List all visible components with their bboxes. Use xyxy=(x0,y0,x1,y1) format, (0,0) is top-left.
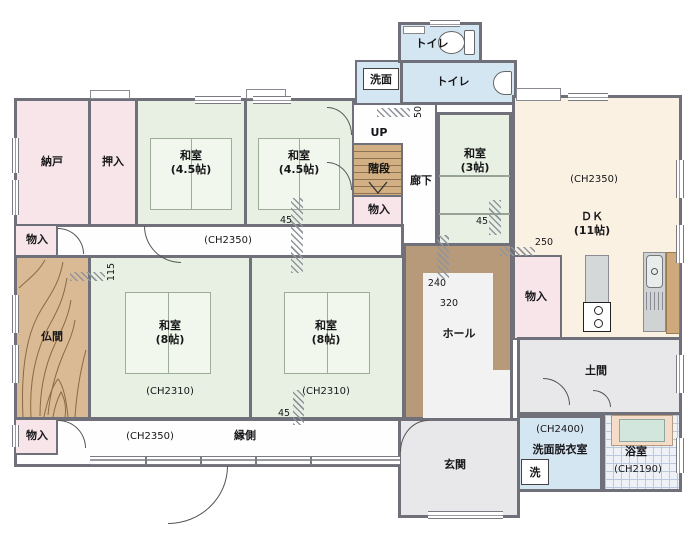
hatch-6 xyxy=(70,272,105,281)
kitchen-side-counter xyxy=(666,252,680,334)
engawa-mullion-1 xyxy=(145,456,147,465)
room-dk-label: ＤＫ xyxy=(581,210,603,224)
hatch-4 xyxy=(500,247,535,256)
hall-floor-inner xyxy=(423,273,493,418)
toilet2-bowl xyxy=(493,71,512,95)
room-washitsu3-label: 和室 xyxy=(464,147,486,161)
stove-burner-1 xyxy=(594,306,603,315)
window-monoire-sw xyxy=(12,425,19,447)
room-dk-size: (11帖) xyxy=(574,224,610,238)
hatch-2 xyxy=(377,108,410,117)
roof-outline-3 xyxy=(516,88,561,101)
room-monoire-nw-label: 物入 xyxy=(26,233,48,247)
room-washitsu8a-label: 和室 xyxy=(159,319,181,333)
dim-320: 320 xyxy=(440,298,458,310)
engawa-ch-label: (CH2350) xyxy=(126,431,174,444)
floor-plan: 納戸 押入 和室 (4.5帖) 和室 (4.5帖) UP 階段 物入 廊下 洗面… xyxy=(0,0,696,557)
window-dk-top xyxy=(568,93,608,101)
room-oshiire-label: 押入 xyxy=(102,155,124,169)
hall-floor-inner2 xyxy=(493,370,510,418)
room-washitsu8a-size: (8帖) xyxy=(156,333,185,347)
room-bath-label: 浴室 xyxy=(625,445,647,459)
dim-45-bottom: 45 xyxy=(278,408,290,420)
room-butsuma-label: 仏間 xyxy=(41,330,63,344)
room-toilet2-label: トイレ xyxy=(437,75,470,89)
window-toilet1 xyxy=(430,20,460,27)
room-washitsu8b-size: (8帖) xyxy=(312,333,341,347)
bathtub xyxy=(619,419,665,442)
stairs-up-label: UP xyxy=(371,126,388,140)
stairs-label: 階段 xyxy=(368,162,390,176)
room-senmen-label: 洗面 xyxy=(363,68,399,90)
dim-45-top: 45 xyxy=(280,215,292,227)
room-washitsu8b-label: 和室 xyxy=(315,319,337,333)
room-washitsu3-size: (3帖) xyxy=(461,161,490,175)
room-toilet1-label: トイレ xyxy=(416,37,449,51)
stairs-direction-arrow xyxy=(366,180,390,196)
toilet1-tank xyxy=(464,30,475,55)
window-doma-right xyxy=(676,355,684,393)
room-washitsu45a-size: (4.5帖) xyxy=(171,163,212,177)
engawa-mullion-4 xyxy=(310,456,312,465)
sink-drain xyxy=(651,268,658,275)
window-nando-2 xyxy=(12,180,19,215)
room-engawa-label: 縁側 xyxy=(234,429,256,443)
room-washitsu8a-ch: (CH2310) xyxy=(146,386,194,399)
dim-50: 50 xyxy=(413,106,425,118)
dim-250: 250 xyxy=(535,237,553,249)
washitsu3-divider-1 xyxy=(439,175,510,177)
room-genkan-label: 玄関 xyxy=(444,458,466,472)
room-nando-label: 納戸 xyxy=(41,155,63,169)
engawa-window-rail xyxy=(90,459,400,460)
room-washitsu8b-ch: (CH2310) xyxy=(302,386,350,399)
hatch-1 xyxy=(291,198,303,273)
window-butsuma-1 xyxy=(12,295,19,333)
room-washitsu45a-label: 和室 xyxy=(180,149,202,163)
hatch-5 xyxy=(437,235,449,279)
engawa-mullion-2 xyxy=(200,456,202,465)
window-nando-1 xyxy=(12,138,19,173)
sink-drainboard xyxy=(646,292,663,310)
room-monoire-stairs-label: 物入 xyxy=(368,203,390,217)
dim-45-mid: 45 xyxy=(476,216,488,228)
room-bath-ch: (CH2190) xyxy=(614,464,662,477)
toilet1-shelf xyxy=(403,26,425,34)
corridor-ch-label: (CH2350) xyxy=(204,235,252,248)
room-senmen-datsui-label: 洗面脱衣室 xyxy=(533,443,588,457)
window-butsuma-2 xyxy=(12,345,19,383)
roof-outline-1 xyxy=(90,90,130,99)
door-arc-exterior-sw xyxy=(168,466,228,524)
dim-240: 240 xyxy=(428,278,446,290)
window-dk-right-2 xyxy=(676,225,684,263)
window-top-2 xyxy=(253,96,291,104)
dim-115: 115 xyxy=(106,263,118,281)
window-bath-right xyxy=(676,438,684,473)
room-hall-label: ホール xyxy=(443,327,476,341)
engawa-window-band xyxy=(90,456,400,465)
room-washitsu45b-label: 和室 xyxy=(288,149,310,163)
engawa-mullion-3 xyxy=(255,456,257,465)
room-rouka-label: 廊下 xyxy=(410,174,432,188)
room-dk-ch: (CH2350) xyxy=(570,174,618,187)
stove-burner-2 xyxy=(594,319,603,328)
laundry-box: 洗 xyxy=(521,459,549,485)
room-monoire-sw-label: 物入 xyxy=(26,429,48,443)
room-monoire-dk-label: 物入 xyxy=(525,290,547,304)
room-senmen-datsui-ch: (CH2400) xyxy=(536,424,584,437)
window-dk-right-1 xyxy=(676,160,684,198)
window-top-1 xyxy=(195,96,241,104)
hatch-3 xyxy=(489,200,501,235)
room-doma-label: 土間 xyxy=(585,364,607,378)
room-washitsu45b-size: (4.5帖) xyxy=(279,163,320,177)
genkan-entrance-door xyxy=(428,511,503,519)
